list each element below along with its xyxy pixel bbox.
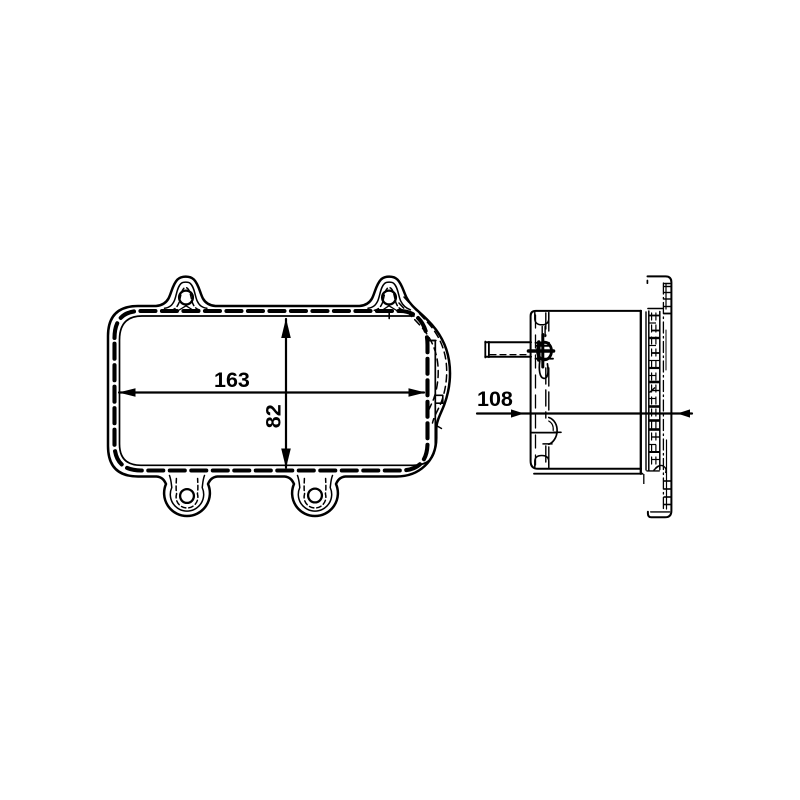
svg-text:82: 82 — [262, 404, 286, 428]
svg-text:163: 163 — [214, 368, 250, 392]
svg-text:108: 108 — [477, 387, 513, 411]
